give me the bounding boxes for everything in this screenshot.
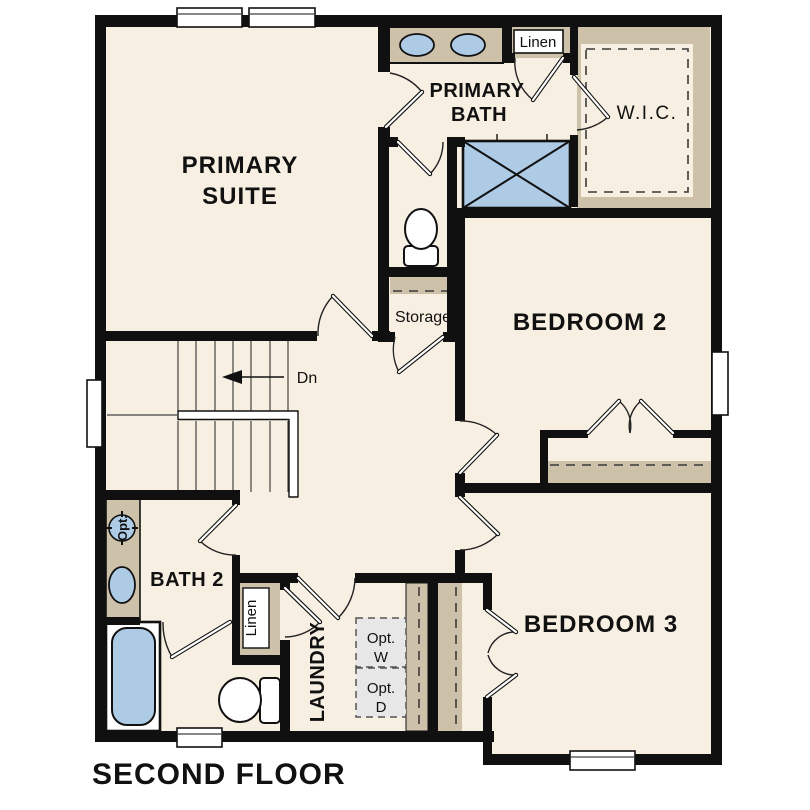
- bath2-label: BATH 2: [150, 569, 224, 591]
- window-bath2: [177, 728, 222, 747]
- primary-suite-label-line1: PRIMARY: [182, 152, 299, 179]
- vanity-sink-right: [451, 34, 485, 56]
- window-top-2: [249, 8, 315, 27]
- bedroom2-label: BEDROOM 2: [513, 309, 667, 336]
- stairs-down-label: Dn: [297, 370, 317, 387]
- linen-upper-label: Linen: [520, 34, 557, 51]
- bath2-toilet-tank: [260, 678, 280, 723]
- wic-label: W.I.C.: [617, 103, 678, 124]
- opt-washer-label-line2: W: [374, 649, 389, 666]
- bedroom3-closet-shelf: [438, 583, 462, 731]
- bath2-toilet-bowl: [219, 678, 261, 722]
- laundry-counter: [406, 583, 428, 731]
- floor-plan-page: PRIMARY SUITE PRIMARY BATH W.I.C. Linen …: [0, 0, 810, 810]
- floor-title: SECOND FLOOR: [92, 758, 346, 791]
- primary-bath-label-line1: PRIMARY: [430, 80, 525, 102]
- linen-lower-label: Linen: [243, 600, 260, 637]
- window-left-stairs: [87, 380, 102, 447]
- bathtub-fixture: [112, 628, 155, 725]
- bath2-sink: [109, 567, 135, 603]
- window-top-1: [177, 8, 242, 27]
- bedroom3-label: BEDROOM 3: [524, 611, 678, 638]
- window-bedroom3: [570, 751, 635, 770]
- opt-sink-label: Opt.: [115, 515, 130, 541]
- vanity-sink-left: [400, 34, 434, 56]
- opt-dryer-label-line1: Opt.: [367, 680, 395, 697]
- primary-suite-label-line2: SUITE: [202, 183, 278, 210]
- floor-plan-svg: PRIMARY SUITE PRIMARY BATH W.I.C. Linen …: [0, 0, 810, 810]
- opt-washer-label-line1: Opt.: [367, 630, 395, 647]
- opt-dryer-label-line2: D: [376, 699, 387, 716]
- laundry-label: LAUNDRY: [307, 622, 329, 723]
- primary-bath-label-line2: BATH: [451, 104, 507, 126]
- storage-label: Storage: [395, 309, 451, 326]
- wall-exterior-left: [95, 15, 106, 742]
- primary-toilet-bowl: [405, 209, 437, 249]
- window-bedroom2: [712, 352, 728, 415]
